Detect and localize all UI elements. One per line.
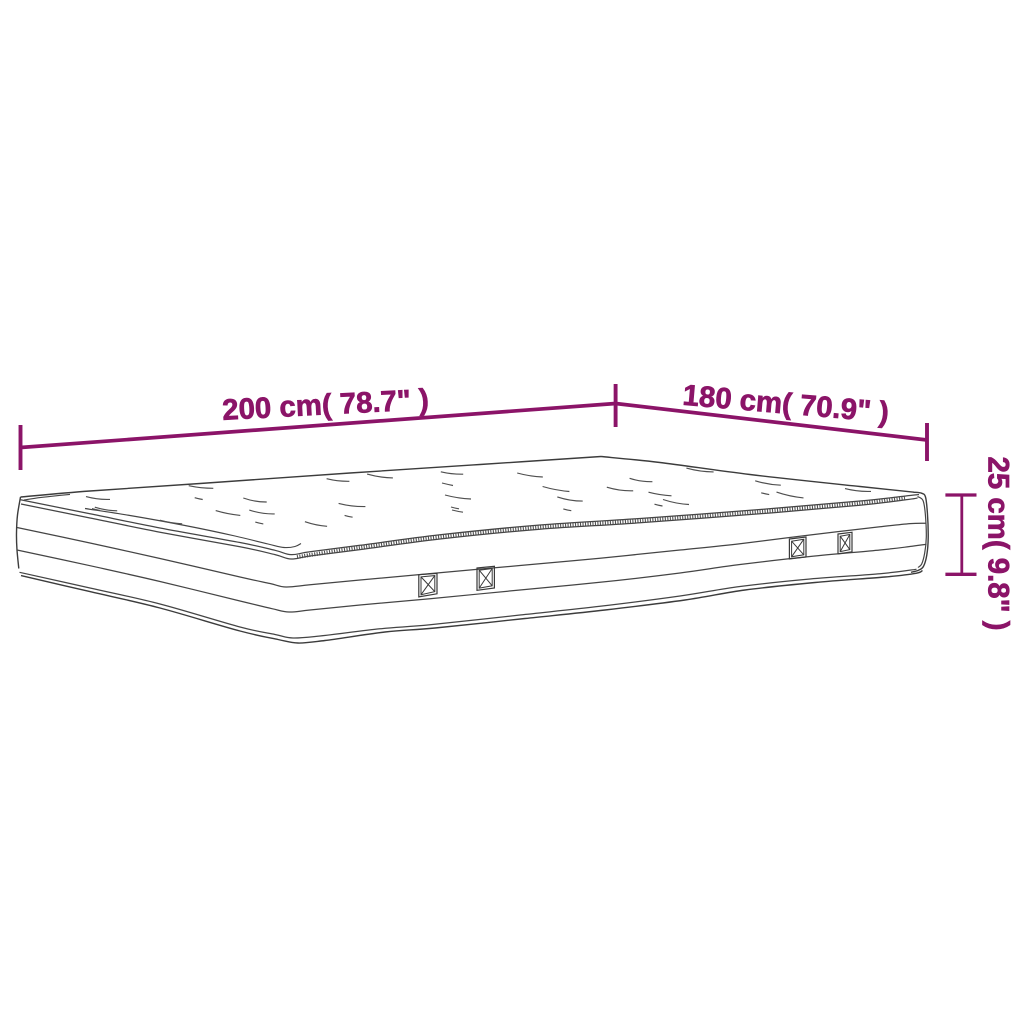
svg-text:25 cm( 9.8" ): 25 cm( 9.8" ) <box>982 456 1015 630</box>
